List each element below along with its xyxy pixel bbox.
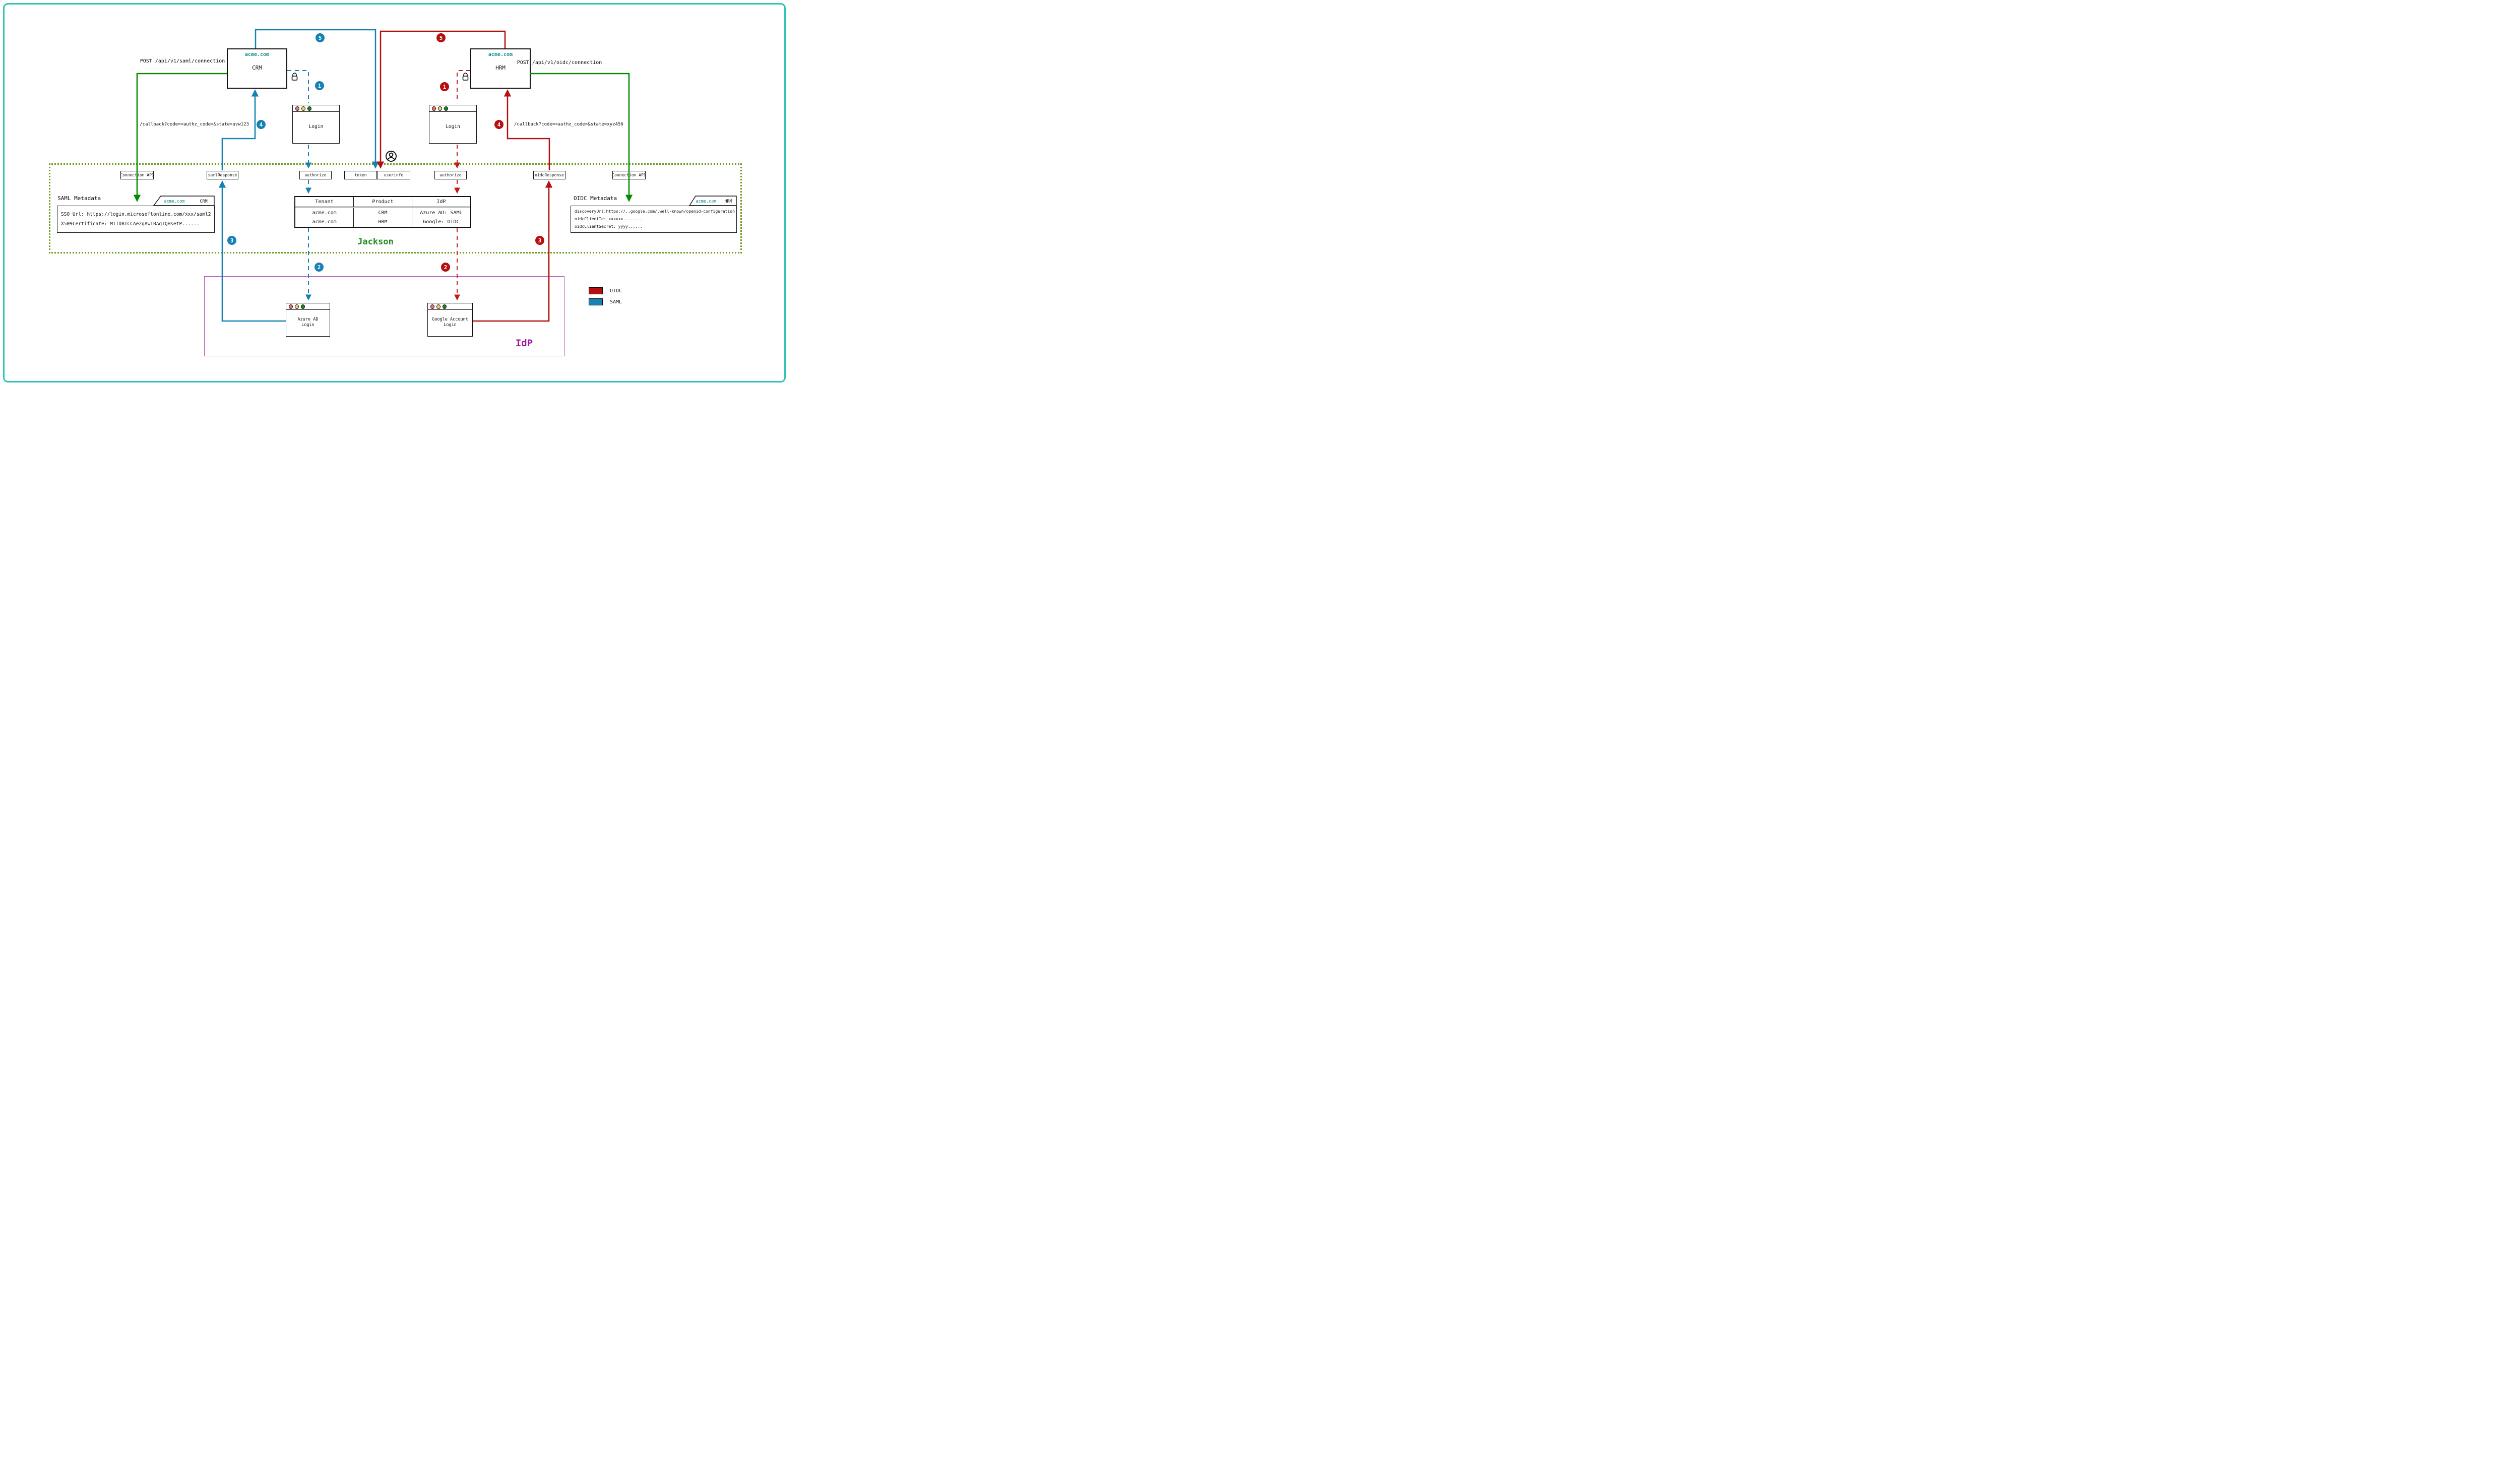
minimize-icon	[438, 106, 442, 111]
legend-oidc: OIDC	[589, 287, 622, 294]
login-window-label: Login	[293, 112, 339, 142]
oidc-callback-label: /callback?code=<authz_code>&state=xyz456	[514, 122, 630, 127]
saml-step5-badge: 5	[316, 33, 325, 42]
table-header-row: Tenant Product IdP	[295, 197, 470, 208]
cell-tenant: acme.com	[295, 208, 354, 218]
oidc-step2-badge: 2	[441, 263, 450, 272]
lock-icon	[291, 72, 298, 81]
saml-step1-badge: 1	[315, 81, 324, 90]
oidc-step1-badge: 1	[440, 82, 449, 91]
close-icon	[295, 106, 299, 111]
crm-domain: acme.com	[245, 52, 269, 57]
window-titlebar	[293, 105, 339, 112]
saml-tab-product: CRM	[200, 199, 207, 204]
oidc-color-swatch	[589, 287, 603, 294]
legend-saml-label: SAML	[610, 299, 622, 305]
crm-app-name: CRM	[252, 65, 262, 71]
hrm-domain: acme.com	[488, 52, 513, 57]
close-icon	[432, 106, 436, 111]
oidc-metadata-tab: acme.com HRM	[689, 196, 737, 206]
saml-step4-badge: 4	[257, 120, 266, 129]
saml-tab-domain: acme.com	[164, 199, 185, 204]
saml-callback-label: /callback?code=<authz_code>&state=uvw123	[138, 122, 249, 127]
oidc-client-secret: oidcClientSecret: yyyy......	[571, 224, 736, 229]
google-account-login-label: Google Account Login	[428, 310, 472, 335]
close-icon	[430, 304, 434, 309]
endpoint-authorize-right: authorize	[434, 171, 467, 179]
lock-icon	[462, 72, 469, 81]
saml-metadata-title: SAML Metadata	[57, 195, 101, 202]
saml-post-label: POST /api/v1/saml/connection	[127, 58, 238, 64]
endpoint-userinfo: userinfo	[377, 171, 410, 179]
saml-color-swatch	[589, 298, 603, 305]
endpoint-connection-api-right: Connection API	[612, 171, 646, 179]
endpoint-saml-response: samlResponse	[207, 171, 238, 179]
sp-login-window-left: Login	[292, 105, 340, 144]
minimize-icon	[301, 106, 305, 111]
oidc-client-id: oidcClientId: xxxxxx........	[571, 217, 736, 221]
maximize-icon	[444, 106, 448, 111]
login-window-label: Login	[429, 112, 476, 142]
jackson-label: Jackson	[348, 237, 403, 247]
idp-label: IdP	[507, 338, 542, 349]
minimize-icon	[295, 304, 299, 309]
crm-app-box: acme.com CRM	[227, 48, 287, 89]
oidc-discovery-url: discoveryUrl:https://..google.com/.well-…	[571, 209, 736, 214]
endpoint-token: token	[344, 171, 377, 179]
legend-saml: SAML	[589, 298, 622, 305]
close-icon	[289, 304, 293, 309]
connections-table: Tenant Product IdP acme.com CRM Azure AD…	[294, 196, 471, 228]
cell-idp: Azure AD: SAML	[412, 208, 470, 218]
saml-step2-badge: 2	[314, 263, 324, 272]
google-account-login-window: Google Account Login	[427, 303, 473, 337]
saml-sso-url: SSO Url: https://login.microsoftonline.c…	[57, 212, 214, 217]
endpoint-connection-api-left: Connection API	[120, 171, 154, 179]
table-row: acme.com HRM Google: OIDC	[295, 218, 470, 227]
oidc-tab-product: HRM	[724, 199, 732, 204]
oidc-metadata-title: OIDC Metadata	[574, 195, 617, 202]
column-header-idp: IdP	[412, 197, 470, 208]
oidc-step3-badge: 3	[535, 236, 544, 245]
saml-x509-certificate: X509Certificate: MIIDBTCCAe2gAwIBAgIQHse…	[57, 221, 214, 227]
oidc-step5-badge: 5	[436, 33, 446, 42]
sso-flow-diagram: Jackson IdP acme.com CRM acme.com HRM PO…	[0, 0, 790, 387]
hrm-app-box: acme.com HRM	[470, 48, 531, 89]
azure-ad-login-window: Azure AD Login	[286, 303, 330, 337]
oidc-metadata-box: discoveryUrl:https://..google.com/.well-…	[571, 206, 737, 233]
cell-idp: Google: OIDC	[412, 218, 470, 227]
saml-step3-badge: 3	[227, 236, 236, 245]
column-header-product: Product	[354, 197, 412, 208]
oidc-tab-domain: acme.com	[696, 199, 717, 204]
user-icon	[385, 150, 397, 162]
window-titlebar	[429, 105, 476, 112]
cell-tenant: acme.com	[295, 218, 354, 227]
sp-login-window-right: Login	[429, 105, 477, 144]
maximize-icon	[443, 304, 447, 309]
saml-metadata-box: SSO Url: https://login.microsoftonline.c…	[57, 206, 215, 233]
oidc-step4-badge: 4	[494, 120, 503, 129]
saml-metadata-tab: acme.com CRM	[153, 196, 215, 206]
azure-ad-login-label: Azure AD Login	[286, 310, 330, 335]
legend-oidc-label: OIDC	[610, 288, 622, 294]
window-titlebar	[428, 303, 472, 310]
maximize-icon	[301, 304, 305, 309]
oidc-post-label: POST /api/v1/oidc/connection	[504, 60, 615, 66]
connections-table-grid: Tenant Product IdP acme.com CRM Azure AD…	[295, 197, 470, 227]
column-header-tenant: Tenant	[295, 197, 354, 208]
cell-product: CRM	[354, 208, 412, 218]
minimize-icon	[436, 304, 440, 309]
maximize-icon	[307, 106, 311, 111]
endpoint-oidc-response: oidcResponse	[533, 171, 565, 179]
table-row: acme.com CRM Azure AD: SAML	[295, 208, 470, 218]
endpoint-authorize-left: authorize	[299, 171, 332, 179]
cell-product: HRM	[354, 218, 412, 227]
window-titlebar	[286, 303, 330, 310]
